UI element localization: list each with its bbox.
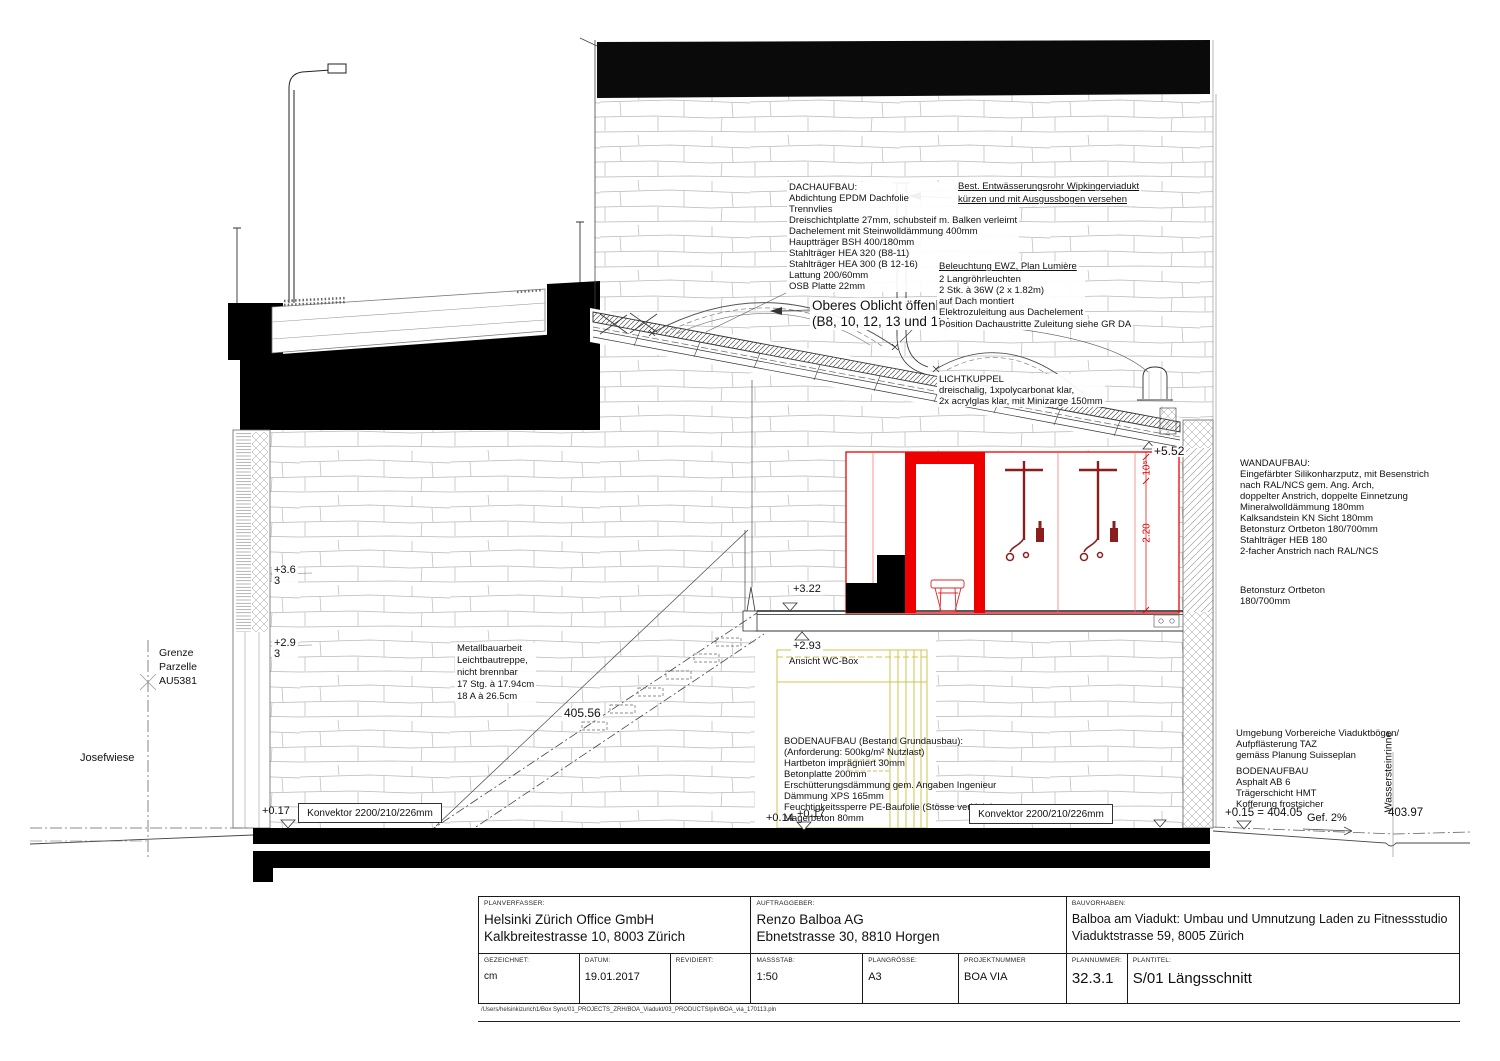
- auftraggeber-label: AUFTRAGGEBER:: [756, 900, 1065, 908]
- auftraggeber-value: Renzo Balboa AG Ebnetstrasse 30, 8810 Ho…: [756, 911, 1065, 945]
- plantitel-value: S/01 Längsschnitt: [1133, 970, 1459, 987]
- datum-cell: DATUM: 19.01.2017: [580, 954, 671, 1003]
- konvektor-box-left: Konvektor 2200/210/226mm: [298, 803, 442, 823]
- massstab-value: 1:50: [756, 971, 862, 983]
- entwaesserung-note: Best. Entwässerungsrohr Wipkingerviadukt…: [956, 180, 1141, 206]
- gefaelle-label: Gef. 2%: [1307, 813, 1347, 824]
- level-014: +0.14: [766, 813, 794, 824]
- metallbau-note: Metallbauarbeit Leichtbautreppe, nicht b…: [455, 643, 536, 703]
- wandaufbau-note: WANDAUFBAU: Eingefärbter Silikonharzputz…: [1240, 458, 1429, 557]
- level-017-mid: +0.17: [797, 809, 825, 820]
- konvektor-right-label: Konvektor 2200/210/226mm: [978, 809, 1104, 820]
- revidiert-label: REVIDIERT:: [676, 957, 751, 965]
- betonsturz-note: Betonsturz Ortbeton 180/700mm: [1240, 585, 1325, 607]
- josefwiese-label: Josefwiese: [80, 753, 134, 764]
- projektnummer-cell: PROJEKTNUMMER BOA VIA: [959, 954, 1067, 1003]
- stone-wall-left: [270, 430, 595, 828]
- projektnummer-value: BOA VIA: [964, 971, 1066, 983]
- planverfasser-label: PLANVERFASSER:: [484, 900, 750, 908]
- dim-105: 10⁵: [1142, 460, 1153, 475]
- position-dach-note: Position Dachaustritte Zuleitung siehe G…: [937, 319, 1133, 330]
- plannummer-label: PLANNUMMER:: [1072, 957, 1127, 965]
- bauvorhaben-label: BAUVORHABEN:: [1072, 900, 1459, 908]
- konvektor-box-right: Konvektor 2200/210/226mm: [969, 804, 1113, 824]
- plangroesse-cell: PLANGRÖSSE: A3: [863, 954, 959, 1003]
- level-293-left: +2.9 3: [272, 638, 298, 660]
- gezeichnet-label: GEZEICHNET:: [484, 957, 579, 965]
- plan-sheet: DACHAUFBAU: Abdichtung EPDM Dachfolie Tr…: [0, 0, 1500, 1061]
- planverfasser-cell: PLANVERFASSER: Helsinki Zürich Office Gm…: [479, 897, 751, 953]
- plangroesse-label: PLANGRÖSSE:: [868, 957, 958, 965]
- gezeichnet-value: cm: [484, 971, 579, 982]
- planverfasser-value: Helsinki Zürich Office GmbH Kalkbreitest…: [484, 911, 750, 945]
- plantitel-cell: PLANTITEL: S/01 Längsschnitt: [1128, 954, 1459, 1003]
- bauvorhaben-value: Balboa am Viadukt: Umbau und Umnutzung L…: [1072, 911, 1459, 945]
- grenze-parzelle-label: Grenze Parzelle AU5381: [159, 646, 197, 688]
- bodenaufbau-aussen-note: BODENAUFBAU Asphalt AB 6 Trägerschicht H…: [1236, 766, 1323, 810]
- datum-value: 19.01.2017: [585, 971, 670, 983]
- projektnummer-label: PROJEKTNUMMER: [964, 957, 1066, 965]
- sheet-bottom-rule: [478, 1021, 1460, 1022]
- plangroesse-value: A3: [868, 971, 958, 983]
- wassersteinrinne-label: Wassersteinrinne: [1384, 732, 1395, 813]
- level-017-left: +0.17: [262, 806, 290, 817]
- ansicht-wc-label: Ansicht WC-Box: [789, 656, 858, 667]
- file-path: /Users/helsinkizurich1/Box Sync/01_PROJE…: [481, 1007, 776, 1013]
- plannummer-value: 32.3.1: [1072, 970, 1127, 987]
- plannummer-cell: PLANNUMMER: 32.3.1: [1067, 954, 1128, 1003]
- massstab-label: MASSSTAB:: [756, 957, 862, 965]
- umgebung-note: Umgebung Vorbereiche Viaduktbögen/ Aufpf…: [1236, 728, 1399, 761]
- auftraggeber-cell: AUFTRAGGEBER: Renzo Balboa AG Ebnetstras…: [751, 897, 1066, 953]
- beleuchtung-note: 2 Langröhrleuchten 2 Stk. à 36W (2 x 1.8…: [937, 274, 1085, 318]
- konvektor-left-label: Konvektor 2200/210/226mm: [307, 808, 433, 819]
- level-322: +3.22: [791, 584, 823, 595]
- massstab-cell: MASSSTAB: 1:50: [751, 954, 863, 1003]
- title-block: PLANVERFASSER: Helsinki Zürich Office Gm…: [478, 896, 1460, 1004]
- beleuchtung-title: Beleuchtung EWZ, Plan Lumière: [937, 261, 1079, 272]
- lichtkuppel-note: LICHTKUPPEL dreischalig, 1xpolycarbonat …: [937, 374, 1105, 407]
- level-363: +3.6 3: [272, 565, 298, 587]
- level-552: +5.52: [1152, 446, 1186, 457]
- dim-220: 2.20: [1142, 523, 1153, 542]
- level-293: +2.93: [791, 641, 823, 652]
- oblicht-note: Oberes Oblicht öffenbar (B8, 10, 12, 13 …: [810, 298, 957, 330]
- datum-label: DATUM:: [585, 957, 670, 965]
- roof-parapet-band: [597, 40, 1210, 98]
- right-wall-cut: [1183, 420, 1213, 828]
- level-405-56: 405.56: [562, 708, 603, 719]
- gezeichnet-cell: GEZEICHNET: cm: [479, 954, 580, 1003]
- level-40397: 403.97: [1388, 808, 1423, 819]
- plantitel-label: PLANTITEL:: [1133, 957, 1459, 965]
- revidiert-cell: REVIDIERT:: [671, 954, 752, 1003]
- bauvorhaben-cell: BAUVORHABEN: Balboa am Viadukt: Umbau un…: [1067, 897, 1459, 953]
- level-015-40405: +0.15 = 404.05: [1225, 808, 1302, 819]
